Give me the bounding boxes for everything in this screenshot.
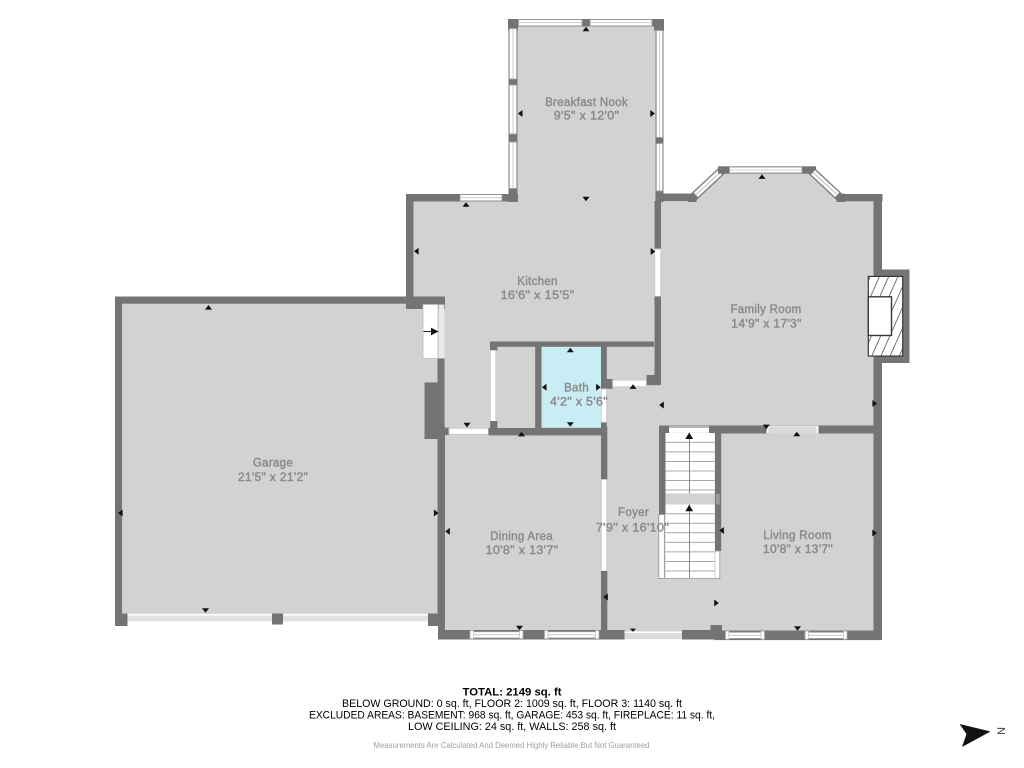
svg-text:21'5" x 21'2": 21'5" x 21'2": [238, 472, 308, 484]
svg-text:LOW CEILING: 24 sq. ft, WALLS:: LOW CEILING: 24 sq. ft, WALLS: 258 sq. f…: [408, 721, 616, 733]
svg-text:BELOW GROUND: 0 sq. ft, FLOOR: BELOW GROUND: 0 sq. ft, FLOOR 2: 1009 sq…: [342, 698, 682, 710]
svg-text:10'8" x 13'7": 10'8" x 13'7": [763, 544, 833, 556]
svg-text:Kitchen: Kitchen: [517, 276, 557, 288]
svg-text:EXCLUDED AREAS: BASEMENT: 968: EXCLUDED AREAS: BASEMENT: 968 sq. ft, GA…: [309, 710, 715, 722]
svg-text:Garage: Garage: [253, 458, 293, 470]
svg-text:Bath: Bath: [564, 383, 589, 395]
svg-text:N: N: [995, 727, 1007, 735]
svg-text:Living Room: Living Room: [763, 530, 831, 542]
svg-text:Foyer: Foyer: [618, 507, 649, 519]
svg-text:9'5" x 12'0": 9'5" x 12'0": [554, 111, 620, 123]
svg-text:7'9" x 16'10": 7'9" x 16'10": [596, 522, 669, 534]
svg-text:Family Room: Family Room: [730, 304, 801, 316]
svg-text:14'9" x 17'3": 14'9" x 17'3": [731, 319, 801, 331]
svg-text:16'6" x 15'5": 16'6" x 15'5": [501, 290, 575, 302]
svg-text:4'2" x 5'6": 4'2" x 5'6": [550, 397, 608, 409]
svg-text:10'8" x 13'7": 10'8" x 13'7": [486, 545, 559, 557]
svg-text:Breakfast Nook: Breakfast Nook: [545, 97, 628, 109]
svg-text:TOTAL: 2149 sq. ft: TOTAL: 2149 sq. ft: [463, 687, 562, 699]
svg-text:Dining Area: Dining Area: [490, 531, 553, 543]
svg-text:Measurements Are Calculated An: Measurements Are Calculated And Deemed H…: [374, 741, 650, 750]
